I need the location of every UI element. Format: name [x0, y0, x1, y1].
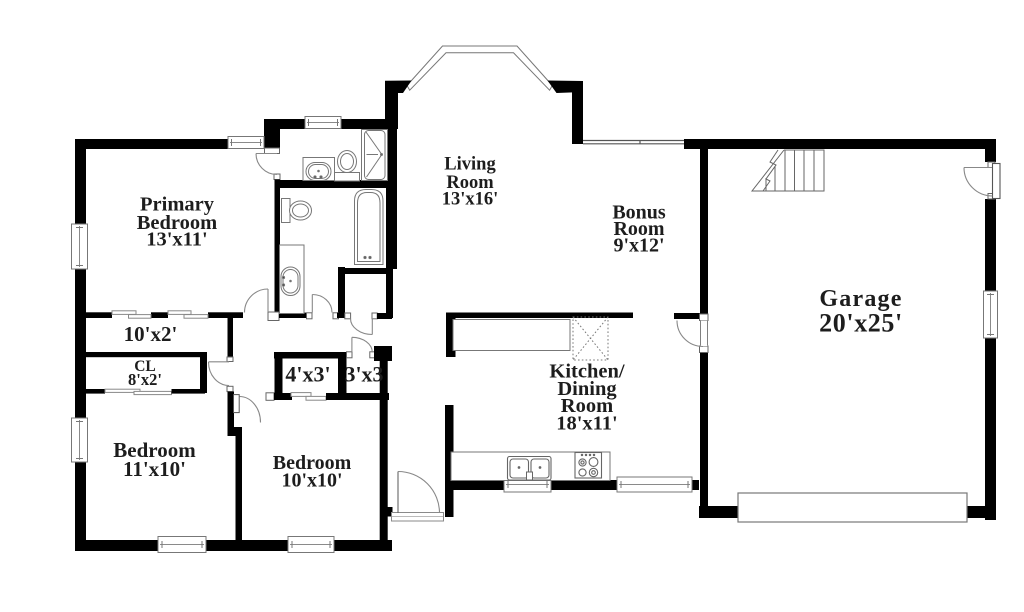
svg-text:8'x2': 8'x2' [128, 370, 162, 389]
svg-text:13'x16': 13'x16' [442, 190, 499, 210]
svg-text:11'x10': 11'x10' [123, 457, 186, 481]
svg-text:10'x2': 10'x2' [124, 322, 178, 346]
svg-text:18'x11': 18'x11' [556, 413, 618, 435]
svg-text:13'x11': 13'x11' [146, 229, 208, 251]
svg-text:20'x25': 20'x25' [819, 309, 903, 338]
svg-text:Living: Living [444, 155, 496, 175]
svg-text:3'x3: 3'x3 [344, 362, 383, 387]
svg-text:10'x10': 10'x10' [281, 470, 342, 492]
svg-text:9'x12': 9'x12' [613, 235, 664, 257]
svg-text:4'x3': 4'x3' [285, 362, 330, 387]
